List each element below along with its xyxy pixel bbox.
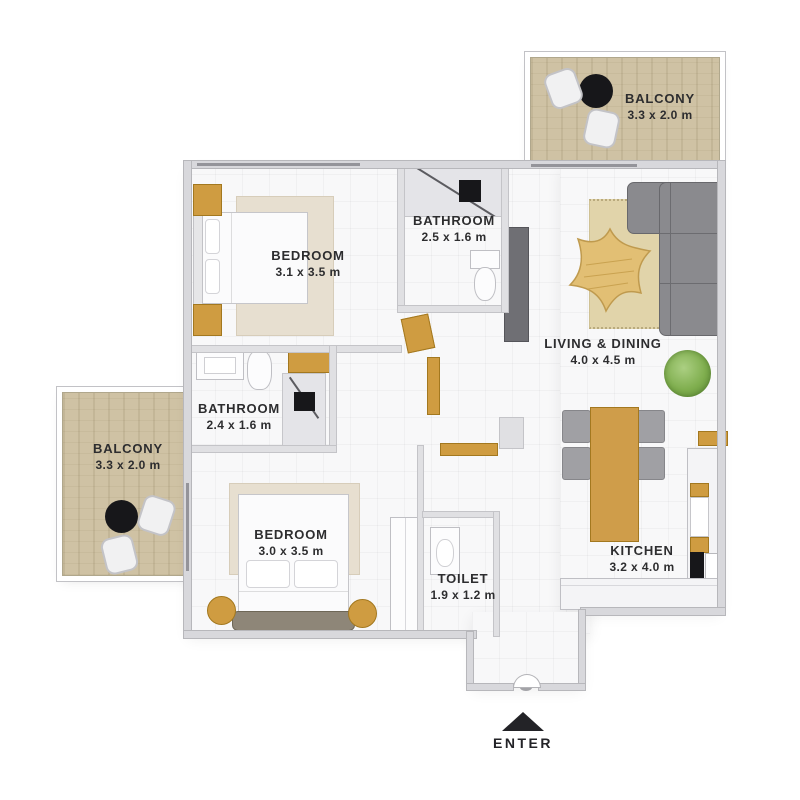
wall-bedroom-top-bottom <box>188 346 401 352</box>
toilet-fixture <box>247 350 272 390</box>
room-name: BALCONY <box>78 441 178 457</box>
bedside-stool <box>348 599 377 628</box>
wall-toilet-top <box>423 512 499 517</box>
door-leaf <box>440 443 498 456</box>
nightstand <box>193 184 222 216</box>
room-name: BATHROOM <box>179 401 299 417</box>
floor-plan: BALCONY 3.3 x 2.0 m BEDROOM 3.1 x 3.5 m … <box>0 0 800 800</box>
wall-bathroom-mid-right <box>330 346 336 452</box>
dining-table <box>590 407 639 542</box>
wall-bedroom-bottom-right <box>418 446 423 636</box>
room-dims: 4.0 x 4.5 m <box>528 353 678 368</box>
sofa-l-shape <box>659 182 724 336</box>
room-dims: 3.2 x 4.0 m <box>592 560 692 575</box>
bathroom-top-vanity <box>459 180 481 202</box>
room-dims: 1.9 x 1.2 m <box>423 588 503 603</box>
room-label-bedroom-top: BEDROOM 3.1 x 3.5 m <box>258 248 358 280</box>
dining-chair <box>562 410 591 443</box>
nightstand <box>193 304 222 336</box>
wall-pier-hallway <box>500 418 523 448</box>
shower-top-bathroom <box>404 168 504 217</box>
sliding-door-balcony-left <box>186 483 189 571</box>
bedroom-bottom-headboard <box>232 611 355 631</box>
room-name: BALCONY <box>610 91 710 107</box>
bathroom-mid-cabinet <box>288 350 334 373</box>
wall-vestibule-bottom <box>539 684 585 690</box>
room-dims: 2.5 x 1.6 m <box>398 230 510 245</box>
room-dims: 3.3 x 2.0 m <box>610 108 710 123</box>
kitchen-counter-bottom <box>560 578 722 610</box>
wall-right <box>718 161 725 615</box>
bathroom-mid-sink <box>196 351 244 380</box>
room-label-bedroom-bottom: BEDROOM 3.0 x 3.5 m <box>241 527 341 559</box>
room-name: LIVING & DINING <box>528 336 678 352</box>
balcony-table <box>579 74 613 108</box>
bedroom-top-headboard <box>193 210 203 306</box>
room-dims: 3.0 x 3.5 m <box>241 544 341 559</box>
dining-chair <box>636 447 665 480</box>
pillow <box>294 560 338 588</box>
room-label-bathroom-middle: BATHROOM 2.4 x 1.6 m <box>179 401 299 433</box>
room-label-balcony-left: BALCONY 3.3 x 2.0 m <box>78 441 178 473</box>
room-label-balcony-top-right: BALCONY 3.3 x 2.0 m <box>610 91 710 123</box>
toilet-fixture <box>474 267 496 301</box>
room-label-bathroom-top: BATHROOM 2.5 x 1.6 m <box>398 213 510 245</box>
room-dims: 3.3 x 2.0 m <box>78 458 178 473</box>
door-leaf <box>427 357 440 415</box>
wall-bottom-right <box>581 608 725 615</box>
shower-glass <box>404 168 504 217</box>
pillow <box>205 219 220 254</box>
wall-bathroom-top-bottom <box>398 306 508 312</box>
room-name: BEDROOM <box>241 527 341 543</box>
window-bedroom-top <box>197 163 360 166</box>
wall-vestibule-bottom <box>467 684 513 690</box>
balcony-table <box>105 500 138 533</box>
sliding-door-balcony-top <box>531 164 637 167</box>
room-label-kitchen: KITCHEN 3.2 x 4.0 m <box>592 543 692 575</box>
room-name: BEDROOM <box>258 248 358 264</box>
coffee-table <box>566 227 654 315</box>
wall-bathroom-mid-bottom <box>188 446 336 452</box>
room-dims: 3.1 x 3.5 m <box>258 265 358 280</box>
wall-bottom-left <box>184 631 476 638</box>
pillow <box>246 560 290 588</box>
bedside-stool <box>207 596 236 625</box>
room-name: BATHROOM <box>398 213 510 229</box>
room-name: KITCHEN <box>592 543 692 559</box>
room-name: TOILET <box>423 571 503 587</box>
room-label-toilet: TOILET 1.9 x 1.2 m <box>423 571 503 603</box>
dining-chair <box>636 410 665 443</box>
dining-chair <box>562 447 591 480</box>
room-label-living-dining: LIVING & DINING 4.0 x 4.5 m <box>528 336 678 368</box>
room-dims: 2.4 x 1.6 m <box>179 418 299 433</box>
enter-label: ENTER <box>480 735 566 751</box>
pillow <box>205 259 220 294</box>
toilet-fixture <box>430 527 460 575</box>
wall-vestibule-right <box>579 610 585 690</box>
enter-arrow-icon <box>502 712 544 731</box>
wall-vestibule-left <box>467 632 473 690</box>
